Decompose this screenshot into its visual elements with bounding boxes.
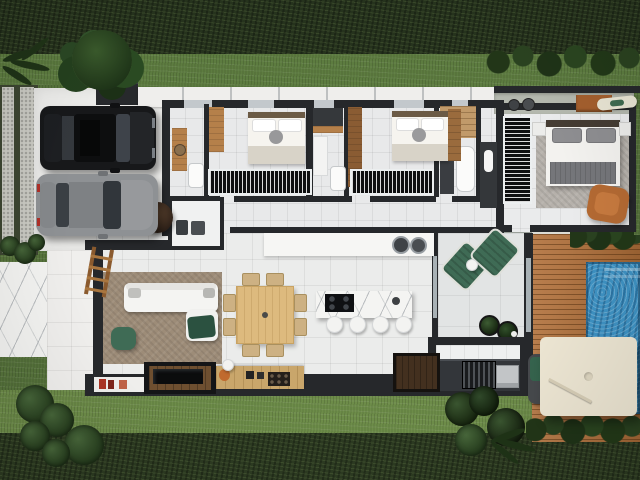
- kitchen-sink: [410, 237, 427, 254]
- pool-step: [604, 275, 640, 278]
- bush-cluster: [0, 234, 46, 268]
- bed1-blanket: [248, 146, 305, 164]
- bed2-throw: [412, 128, 426, 142]
- patio-side-table: [466, 259, 478, 271]
- suv-windshield: [116, 114, 130, 162]
- gray-sedan: [36, 174, 158, 236]
- kitchen-stool: [326, 316, 343, 333]
- corridor-wall: [234, 196, 352, 202]
- bath2-shelf: [313, 126, 343, 133]
- marble-walkway: [0, 262, 48, 357]
- sedan-trunk: [40, 182, 56, 228]
- top-right-shrub-row: [486, 40, 640, 80]
- master-pillow: [552, 128, 582, 143]
- armchair-cushion: [593, 191, 620, 217]
- dining-chair: [266, 344, 284, 357]
- dining-chair: [294, 294, 307, 312]
- nightstand: [532, 122, 546, 136]
- kitchen-stool: [395, 316, 412, 333]
- dining-chair: [266, 273, 284, 286]
- street-strip: [20, 87, 34, 253]
- washer: [176, 220, 188, 235]
- bed1-headboard: [248, 112, 305, 118]
- master-armchair: [585, 183, 631, 225]
- wine-rack: [268, 372, 290, 386]
- l-sofa: [124, 283, 218, 341]
- bath2-counter: [313, 108, 343, 126]
- window: [314, 100, 334, 108]
- cooktop: [325, 294, 354, 312]
- bath1-toilet: [188, 163, 204, 188]
- sedan-windshield: [103, 181, 121, 229]
- tv-screen: [153, 369, 203, 384]
- tv-wall-unit: [144, 362, 216, 394]
- corridor-wall: [370, 196, 436, 202]
- master-wardrobe: [503, 116, 532, 204]
- master-pillow: [586, 128, 616, 143]
- outdoor-wood-table: [393, 353, 440, 392]
- sofa-pillow: [203, 288, 215, 298]
- kitchen-sink: [392, 236, 410, 254]
- master-south-wall: [530, 225, 636, 232]
- kitchen-stool: [349, 316, 366, 333]
- suv-sunroof: [80, 120, 100, 156]
- bed2-headboard: [392, 111, 448, 117]
- suv-rear-glass: [62, 116, 74, 160]
- green-throw: [187, 315, 216, 340]
- window: [248, 100, 274, 108]
- street-strip: [2, 87, 14, 253]
- dining-chair: [242, 344, 260, 357]
- outdoor-appliance: [496, 365, 519, 388]
- decor-box: [257, 372, 264, 379]
- dining-chair: [223, 294, 236, 312]
- sedan-mirror: [98, 171, 108, 176]
- fern: [455, 424, 487, 456]
- sedan-hood: [121, 180, 153, 230]
- dryer: [191, 221, 205, 235]
- grill: [462, 361, 496, 389]
- bush: [42, 439, 70, 467]
- table-center: [262, 312, 268, 318]
- pool-step: [604, 268, 640, 271]
- hall-sink: [484, 150, 493, 172]
- bed1-desk: [209, 107, 224, 152]
- bed1: [248, 112, 305, 164]
- suv-headlight: [152, 148, 155, 158]
- red-book: [119, 380, 127, 389]
- kitchen-stool: [372, 316, 389, 333]
- bath1-sink: [174, 144, 186, 156]
- master-bed: [546, 120, 620, 186]
- parasol-pole: [548, 378, 592, 403]
- bush-cluster: [12, 381, 118, 473]
- sedan-mirror: [98, 234, 108, 239]
- ball-lamp: [222, 359, 234, 371]
- suv-mirror: [110, 168, 120, 173]
- bush: [64, 425, 104, 465]
- nightstand: [619, 122, 631, 136]
- dining-chair: [242, 273, 260, 286]
- green-pouf: [111, 327, 136, 350]
- shelf-back-wall: [494, 86, 640, 93]
- bed1-throw: [269, 130, 283, 144]
- dining-chair: [223, 318, 236, 336]
- bed2: [392, 111, 448, 161]
- white-parasol: [540, 337, 637, 416]
- sedan-rear-glass: [56, 183, 69, 227]
- bedroom2-wardrobe: [350, 169, 434, 195]
- master-blanket: [550, 162, 616, 184]
- bed1-pillow: [278, 119, 302, 132]
- surfboard-stripe: [610, 99, 625, 106]
- black-suv: [40, 106, 156, 170]
- suv-trunk: [44, 114, 62, 162]
- sedan-taillight: [37, 184, 40, 192]
- deck-glass-door: [526, 258, 531, 332]
- driveway-tree: [72, 30, 132, 90]
- bath2-vanity: [313, 136, 328, 176]
- bath2-toilet: [330, 166, 346, 191]
- sofa-pillow: [128, 288, 141, 298]
- floor-plan-render: [0, 0, 640, 480]
- dining-chair: [294, 318, 307, 336]
- outdoor-kitchen-wall: [428, 337, 528, 345]
- sedan-taillight: [37, 218, 40, 226]
- suv-mirror: [110, 103, 120, 108]
- bed2-pillow: [421, 118, 444, 131]
- bedroom1-wardrobe: [208, 169, 312, 195]
- decor-vase: [508, 99, 520, 111]
- suv-hood: [130, 112, 154, 164]
- bed2-blanket: [392, 144, 448, 161]
- parasol-hub: [584, 372, 593, 381]
- island-bowl: [392, 297, 400, 305]
- window: [394, 100, 424, 108]
- master-headboard: [546, 120, 620, 127]
- suv-headlight: [152, 118, 155, 128]
- bed2-closet: [448, 109, 461, 161]
- patio-glass-door: [433, 256, 437, 318]
- decor-vase: [522, 98, 535, 111]
- dining-table: [236, 286, 294, 344]
- decor-box: [246, 371, 254, 379]
- sedan-roof: [69, 182, 103, 228]
- bush: [28, 234, 45, 251]
